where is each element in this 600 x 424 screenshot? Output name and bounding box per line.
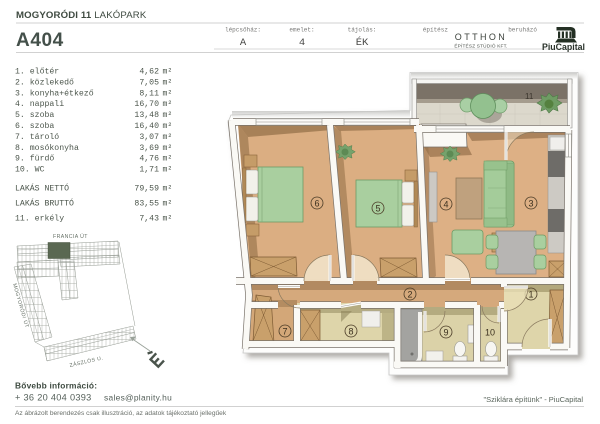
svg-text:16,70: 16,70 xyxy=(134,100,159,109)
svg-text:1: 1 xyxy=(528,290,533,300)
svg-text:8,11: 8,11 xyxy=(139,89,159,98)
svg-text:m²: m² xyxy=(163,166,173,175)
svg-text:Az ábrázolt berendezés csak il: Az ábrázolt berendezés csak illusztráció… xyxy=(15,410,227,417)
svg-text:m²: m² xyxy=(163,89,173,98)
svg-text:ÉPÍTÉSZ STÚDIÓ KFT.: ÉPÍTÉSZ STÚDIÓ KFT. xyxy=(454,43,507,49)
svg-text:+ 36 20 404 0393: + 36 20 404 0393 xyxy=(15,393,92,403)
svg-text:3: 3 xyxy=(528,199,533,209)
svg-text:83,55: 83,55 xyxy=(134,200,159,209)
svg-text:4. nappali: 4. nappali xyxy=(15,99,64,109)
svg-text:9: 9 xyxy=(443,328,448,338)
svg-text:ÉK: ÉK xyxy=(356,35,369,49)
svg-text:A: A xyxy=(240,37,247,49)
svg-text:4,62: 4,62 xyxy=(139,68,159,77)
svg-text:7. tároló: 7. tároló xyxy=(15,132,59,142)
svg-text:m²: m² xyxy=(163,100,173,109)
svg-text:4: 4 xyxy=(443,200,448,210)
svg-text:m²: m² xyxy=(163,144,173,153)
svg-text:tájolás:: tájolás: xyxy=(348,27,377,34)
svg-text:építész: építész xyxy=(423,27,449,34)
svg-text:OTTHON: OTTHON xyxy=(455,32,507,42)
svg-text:sales@planity.hu: sales@planity.hu xyxy=(104,393,172,403)
svg-text:11. erkély: 11. erkély xyxy=(15,214,64,224)
svg-text:7: 7 xyxy=(282,327,287,337)
svg-text:5. szoba: 5. szoba xyxy=(15,110,54,120)
svg-text:1,71: 1,71 xyxy=(139,166,159,175)
svg-text:m²: m² xyxy=(163,68,173,77)
svg-text:m²: m² xyxy=(163,200,173,209)
svg-text:7,43: 7,43 xyxy=(139,215,159,224)
svg-text:ZÁSZLÓS U.: ZÁSZLÓS U. xyxy=(69,354,104,369)
svg-text:79,59: 79,59 xyxy=(134,185,159,194)
svg-text:9. fürdő: 9. fürdő xyxy=(15,154,54,164)
svg-text:8: 8 xyxy=(348,327,353,337)
svg-text:"Sziklára építünk" - PiuCapita: "Sziklára építünk" - PiuCapital xyxy=(483,395,583,404)
svg-text:4,76: 4,76 xyxy=(139,155,159,164)
svg-text:3,69: 3,69 xyxy=(139,144,159,153)
svg-text:13,48: 13,48 xyxy=(134,111,159,120)
svg-text:3,07: 3,07 xyxy=(139,133,159,142)
svg-text:m²: m² xyxy=(163,78,173,87)
svg-text:8. mosókonyha: 8. mosókonyha xyxy=(15,143,79,153)
svg-text:10. WC: 10. WC xyxy=(15,166,45,175)
svg-text:4: 4 xyxy=(299,37,305,49)
svg-text:2: 2 xyxy=(407,290,412,300)
svg-text:beruházó: beruházó xyxy=(508,27,537,34)
svg-text:LAKÁS NETTÓ: LAKÁS NETTÓ xyxy=(15,183,69,194)
svg-text:3. konyha+étkező: 3. konyha+étkező xyxy=(15,88,94,98)
svg-text:m²: m² xyxy=(163,111,173,120)
svg-text:lépcsőház:: lépcsőház: xyxy=(225,27,261,34)
svg-text:A404: A404 xyxy=(16,30,64,51)
svg-text:6. szoba: 6. szoba xyxy=(15,121,54,131)
svg-text:16,40: 16,40 xyxy=(134,122,159,131)
svg-text:2. közlekedő: 2. közlekedő xyxy=(15,77,74,87)
svg-text:m²: m² xyxy=(163,155,173,164)
svg-text:10: 10 xyxy=(485,328,495,338)
svg-text:m²: m² xyxy=(163,133,173,142)
svg-text:7,05: 7,05 xyxy=(139,78,159,87)
svg-text:m²: m² xyxy=(163,185,173,194)
svg-text:m²: m² xyxy=(163,215,173,224)
svg-text:Bővebb információ:: Bővebb információ: xyxy=(15,381,97,391)
svg-text:5: 5 xyxy=(375,204,380,214)
svg-text:FRANCIA ÚT: FRANCIA ÚT xyxy=(53,233,88,240)
svg-text:PiuCapital: PiuCapital xyxy=(542,42,585,52)
svg-text:LAKÁS BRUTTÓ: LAKÁS BRUTTÓ xyxy=(15,198,74,209)
svg-text:m²: m² xyxy=(163,122,173,131)
svg-text:emelet:: emelet: xyxy=(289,27,314,34)
svg-text:MOGYORÓDI 11 LAKÓPARK: MOGYORÓDI 11 LAKÓPARK xyxy=(16,9,147,21)
svg-text:1. előtér: 1. előtér xyxy=(15,67,59,77)
svg-text:6: 6 xyxy=(314,199,319,209)
svg-text:11: 11 xyxy=(525,92,534,101)
